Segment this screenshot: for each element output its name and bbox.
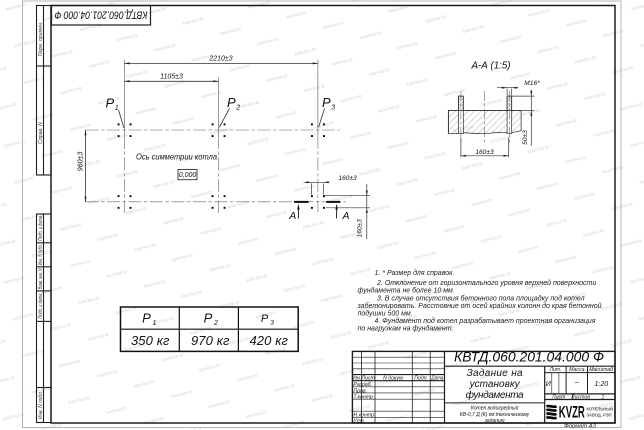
svg-text:970 кг: 970 кг <box>191 333 230 348</box>
svg-text:Ось симметрии котла: Ось симметрии котла <box>136 151 217 161</box>
svg-text:установку: установку <box>469 379 521 390</box>
svg-text:KVZR: KVZR <box>559 403 585 422</box>
svg-text:Взам. инв. N: Взам. инв. N <box>38 268 44 289</box>
svg-text:заданию: заданию <box>484 418 505 424</box>
svg-text:960±3: 960±3 <box>78 152 85 172</box>
svg-text:2. Отклонение от горизонтально: 2. Отклонение от горизонтального уровня … <box>376 279 596 287</box>
svg-text:350 кг: 350 кг <box>131 333 170 348</box>
svg-text:4. Фундамент под котел разраба: 4. Фундамент под котел разрабатывает про… <box>375 317 596 325</box>
svg-text:Лист: Лист <box>361 375 376 381</box>
svg-text:P: P <box>261 313 269 325</box>
svg-text:A: A <box>341 210 349 222</box>
svg-text:P: P <box>106 96 115 111</box>
svg-text:2: 2 <box>235 105 240 112</box>
svg-text:КВТД.060.201.04.000 Ф: КВТД.060.201.04.000 Ф <box>454 349 604 365</box>
svg-text:Подп. и дата: Подп. и дата <box>38 216 44 241</box>
svg-text:Пров.: Пров. <box>353 388 367 394</box>
svg-text:P: P <box>204 311 213 326</box>
svg-text:ЗАВОД. РЭП: ЗАВОД. РЭП <box>587 413 613 418</box>
svg-text:Н.контр: Н.контр <box>353 413 374 419</box>
svg-text:3: 3 <box>270 320 274 327</box>
svg-text:Инв. N подл.: Инв. N подл. <box>38 391 44 419</box>
svg-text:Масса: Масса <box>569 367 584 373</box>
svg-text:1: 1 <box>601 394 604 400</box>
svg-text:50±3: 50±3 <box>522 130 529 145</box>
svg-text:подушки 500 мм.: подушки 500 мм. <box>358 309 413 317</box>
svg-text:1: 1 <box>115 105 119 112</box>
svg-text:по нагрузкам на фундамент.: по нагрузкам на фундамент. <box>358 325 454 333</box>
svg-text:1:20: 1:20 <box>594 381 608 388</box>
svg-text:N докум.: N докум. <box>383 375 404 381</box>
svg-text:Листов: Листов <box>570 394 590 400</box>
svg-text:Подп.: Подп. <box>414 375 428 381</box>
svg-text:Дата: Дата <box>431 375 444 381</box>
svg-text:2210±3: 2210±3 <box>208 56 232 63</box>
svg-text:фундамента не более 10 мм.: фундамента не более 10 мм. <box>358 287 455 295</box>
svg-text:А-А (1:5): А-А (1:5) <box>471 60 511 72</box>
svg-text:Разраб.: Разраб. <box>353 382 372 388</box>
svg-text:фундамента: фундамента <box>466 389 524 401</box>
svg-text:P: P <box>227 95 236 110</box>
svg-text:–: – <box>574 380 579 387</box>
svg-text:Масштаб: Масштаб <box>589 367 614 373</box>
svg-text:Лист: Лист <box>551 394 566 400</box>
svg-text:420 кг: 420 кг <box>249 333 288 348</box>
svg-text:3: 3 <box>331 105 335 112</box>
svg-text:160±3: 160±3 <box>475 149 494 156</box>
svg-text:КВТД.060.201.04.000 Ф: КВТД.060.201.04.000 Ф <box>54 9 147 21</box>
svg-text:Справ. N: Справ. N <box>38 122 44 144</box>
svg-text:0,000: 0,000 <box>179 172 197 179</box>
svg-text:1105±3: 1105±3 <box>160 73 183 80</box>
svg-text:Утв.: Утв. <box>353 419 365 425</box>
svg-text:Формат А3: Формат А3 <box>564 424 596 430</box>
svg-text:1. * Размер для справок.: 1. * Размер для справок. <box>375 269 455 277</box>
svg-text:P: P <box>322 95 331 110</box>
svg-text:Лит.: Лит. <box>548 367 561 373</box>
svg-text:Инв. N дубл.: Инв. N дубл. <box>38 244 44 265</box>
svg-text:Изм.: Изм. <box>353 375 361 381</box>
svg-text:Т.контр: Т.контр <box>353 395 373 401</box>
svg-text:160±3: 160±3 <box>356 219 363 238</box>
svg-text:P: P <box>142 311 151 326</box>
svg-text:3. В случае отсутствия бетонно: 3. В случае отсутствия бетонного пола пл… <box>377 295 585 303</box>
svg-text:160±3: 160±3 <box>338 175 357 182</box>
svg-text:Задание на: Задание на <box>467 368 523 379</box>
svg-text:забетонировать. Расстояние от: забетонировать. Расстояние от осей крайн… <box>357 302 602 310</box>
svg-text:2: 2 <box>213 320 218 327</box>
svg-text:A: A <box>288 210 296 222</box>
svg-text:Перв. примен.: Перв. примен. <box>38 22 44 56</box>
svg-text:М16*: М16* <box>524 80 540 87</box>
svg-text:Котел водогрейный: Котел водогрейный <box>471 405 519 412</box>
svg-text:КОТЕЛЬНЫЙ: КОТЕЛЬНЫЙ <box>587 404 614 411</box>
svg-text:Подп. и дата: Подп. и дата <box>38 294 44 319</box>
svg-text:1: 1 <box>153 320 157 327</box>
